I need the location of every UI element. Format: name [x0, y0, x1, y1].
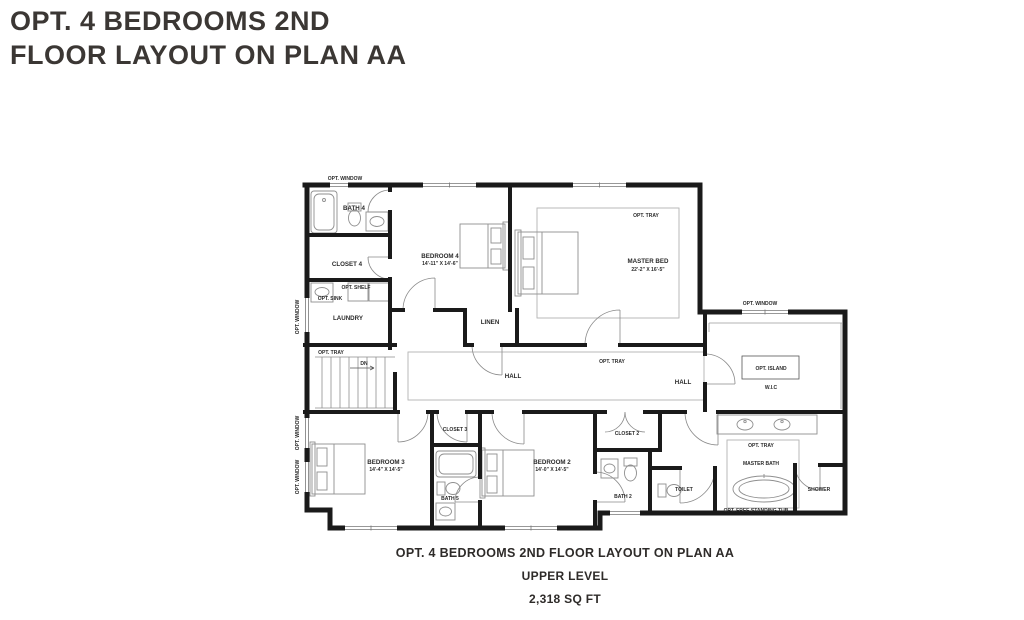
stairs-dn-label: DN — [360, 361, 368, 367]
wic-door-arc — [705, 354, 735, 384]
closet3-label: CLOSET 3 — [443, 427, 468, 433]
master-bed-icon — [515, 230, 578, 296]
page-title: OPT. 4 BEDROOMS 2ND FLOOR LAYOUT ON PLAN… — [10, 4, 407, 72]
window-icon — [573, 183, 626, 188]
hall-tray-outline — [408, 352, 704, 400]
opt-window-label-right: OPT. WINDOW — [743, 301, 778, 307]
bedroom2-label: BEDROOM 2 — [533, 459, 571, 466]
hall-tray-label: OPT. TRAY — [599, 359, 625, 365]
bath2-toilet-icon — [624, 458, 637, 481]
linen-label: LINEN — [481, 319, 500, 326]
bath4-label: BATH 4 — [343, 205, 365, 212]
wic-label: W.I.C — [765, 385, 778, 391]
bath5-label: BATH 5 — [441, 496, 459, 502]
vestibule-door-arc — [685, 412, 718, 445]
window-icon — [423, 183, 476, 188]
hall2-label: HALL — [675, 379, 692, 386]
floor-plan: OPT. WINDOW BATH 4 CLOSET 4 OPT. SHELF O… — [290, 172, 860, 544]
bedroom4-label: BEDROOM 4 — [421, 253, 459, 260]
stairs-tray-label: OPT. TRAY — [318, 350, 344, 356]
window-icon — [742, 310, 788, 315]
caption-sqft: 2,318 SQ FT — [285, 592, 845, 606]
floor-plan-drawing: OPT. WINDOW BATH 4 CLOSET 4 OPT. SHELF O… — [290, 172, 860, 544]
opt-island-label: OPT. ISLAND — [755, 366, 787, 372]
mb-tray-label: OPT. TRAY — [748, 443, 774, 449]
laundry-label: LAUNDRY — [333, 315, 364, 322]
bedroom4-door-arc — [403, 278, 435, 310]
opt-window-label-left-1: OPT. WINDOW — [295, 300, 301, 335]
master-door-arc — [585, 310, 620, 345]
closet4-label: CLOSET 4 — [332, 261, 363, 268]
bedroom3-door-arc — [398, 412, 428, 442]
window-icon — [330, 183, 348, 188]
toilet-label: TOILET — [675, 487, 693, 493]
toilet-door-arc — [680, 468, 715, 503]
master-bed-label: MASTER BED — [628, 258, 669, 265]
window-icon — [345, 526, 397, 531]
stairs-icon — [315, 357, 395, 408]
window-icon — [505, 526, 557, 531]
free-standing-tub-icon — [733, 474, 795, 502]
window-icon — [610, 511, 640, 516]
vanity-double-sink-icon — [717, 415, 817, 434]
bedroom2-dims: 14'-0" X 14'-5" — [535, 467, 569, 473]
hall-label: HALL — [505, 373, 522, 380]
bedroom3-label: BEDROOM 3 — [367, 459, 405, 466]
bath5-sink-icon — [436, 503, 455, 520]
opt-window-label-left-3: OPT. WINDOW — [295, 460, 301, 495]
plan-caption: OPT. 4 BEDROOMS 2ND FLOOR LAYOUT ON PLAN… — [285, 546, 845, 606]
bedroom2-bed-icon — [480, 448, 534, 498]
master-bath-label: MASTER BATH — [743, 461, 779, 467]
tray-ceiling-outlines — [408, 208, 799, 508]
opt-window-label-left-2: OPT. WINDOW — [295, 416, 301, 451]
bedroom3-bed-icon — [310, 442, 365, 496]
bath2-sink-icon — [601, 459, 618, 478]
floor-plan-page: OPT. 4 BEDROOMS 2ND FLOOR LAYOUT ON PLAN… — [0, 0, 1024, 620]
opt-sink-label: OPT. SINK — [318, 296, 343, 302]
bedroom3-dims: 14'-4" X 14'-5" — [369, 467, 403, 473]
bath4-door-arc — [368, 190, 390, 212]
bath5-tub-icon — [436, 451, 476, 477]
opt-window-label-top: OPT. WINDOW — [328, 176, 363, 182]
closet2-label: CLOSET 2 — [615, 431, 640, 437]
master-tray-label: OPT. TRAY — [633, 213, 659, 219]
bath2-label: BATH 2 — [614, 494, 632, 500]
window-icon — [305, 418, 310, 448]
closet4-door-arc — [368, 257, 390, 279]
title-line-1: OPT. 4 BEDROOMS 2ND — [10, 4, 407, 38]
title-line-2: FLOOR LAYOUT ON PLAN AA — [10, 38, 407, 72]
linen-door-arc — [472, 345, 502, 375]
bedroom4-dims: 14'-11" X 14'-6" — [422, 261, 458, 267]
shower-label: SHOWER — [808, 487, 831, 493]
master-bed-dims: 22'-2" X 16'-5" — [631, 267, 665, 273]
window-icon — [305, 298, 310, 332]
window-icon — [305, 462, 310, 492]
bedroom2-door-arc — [492, 412, 524, 444]
bedroom4-bed-icon — [460, 222, 509, 270]
free-tub-label: OPT. FREE STANDING TUB — [724, 508, 789, 514]
closet2-door-arcs — [605, 412, 645, 432]
caption-level: UPPER LEVEL — [285, 569, 845, 583]
bath4-tub-icon — [311, 191, 337, 233]
caption-title: OPT. 4 BEDROOMS 2ND FLOOR LAYOUT ON PLAN… — [285, 546, 845, 560]
opt-shelf-label: OPT. SHELF — [342, 285, 371, 291]
bath4-sink-icon — [366, 212, 388, 231]
